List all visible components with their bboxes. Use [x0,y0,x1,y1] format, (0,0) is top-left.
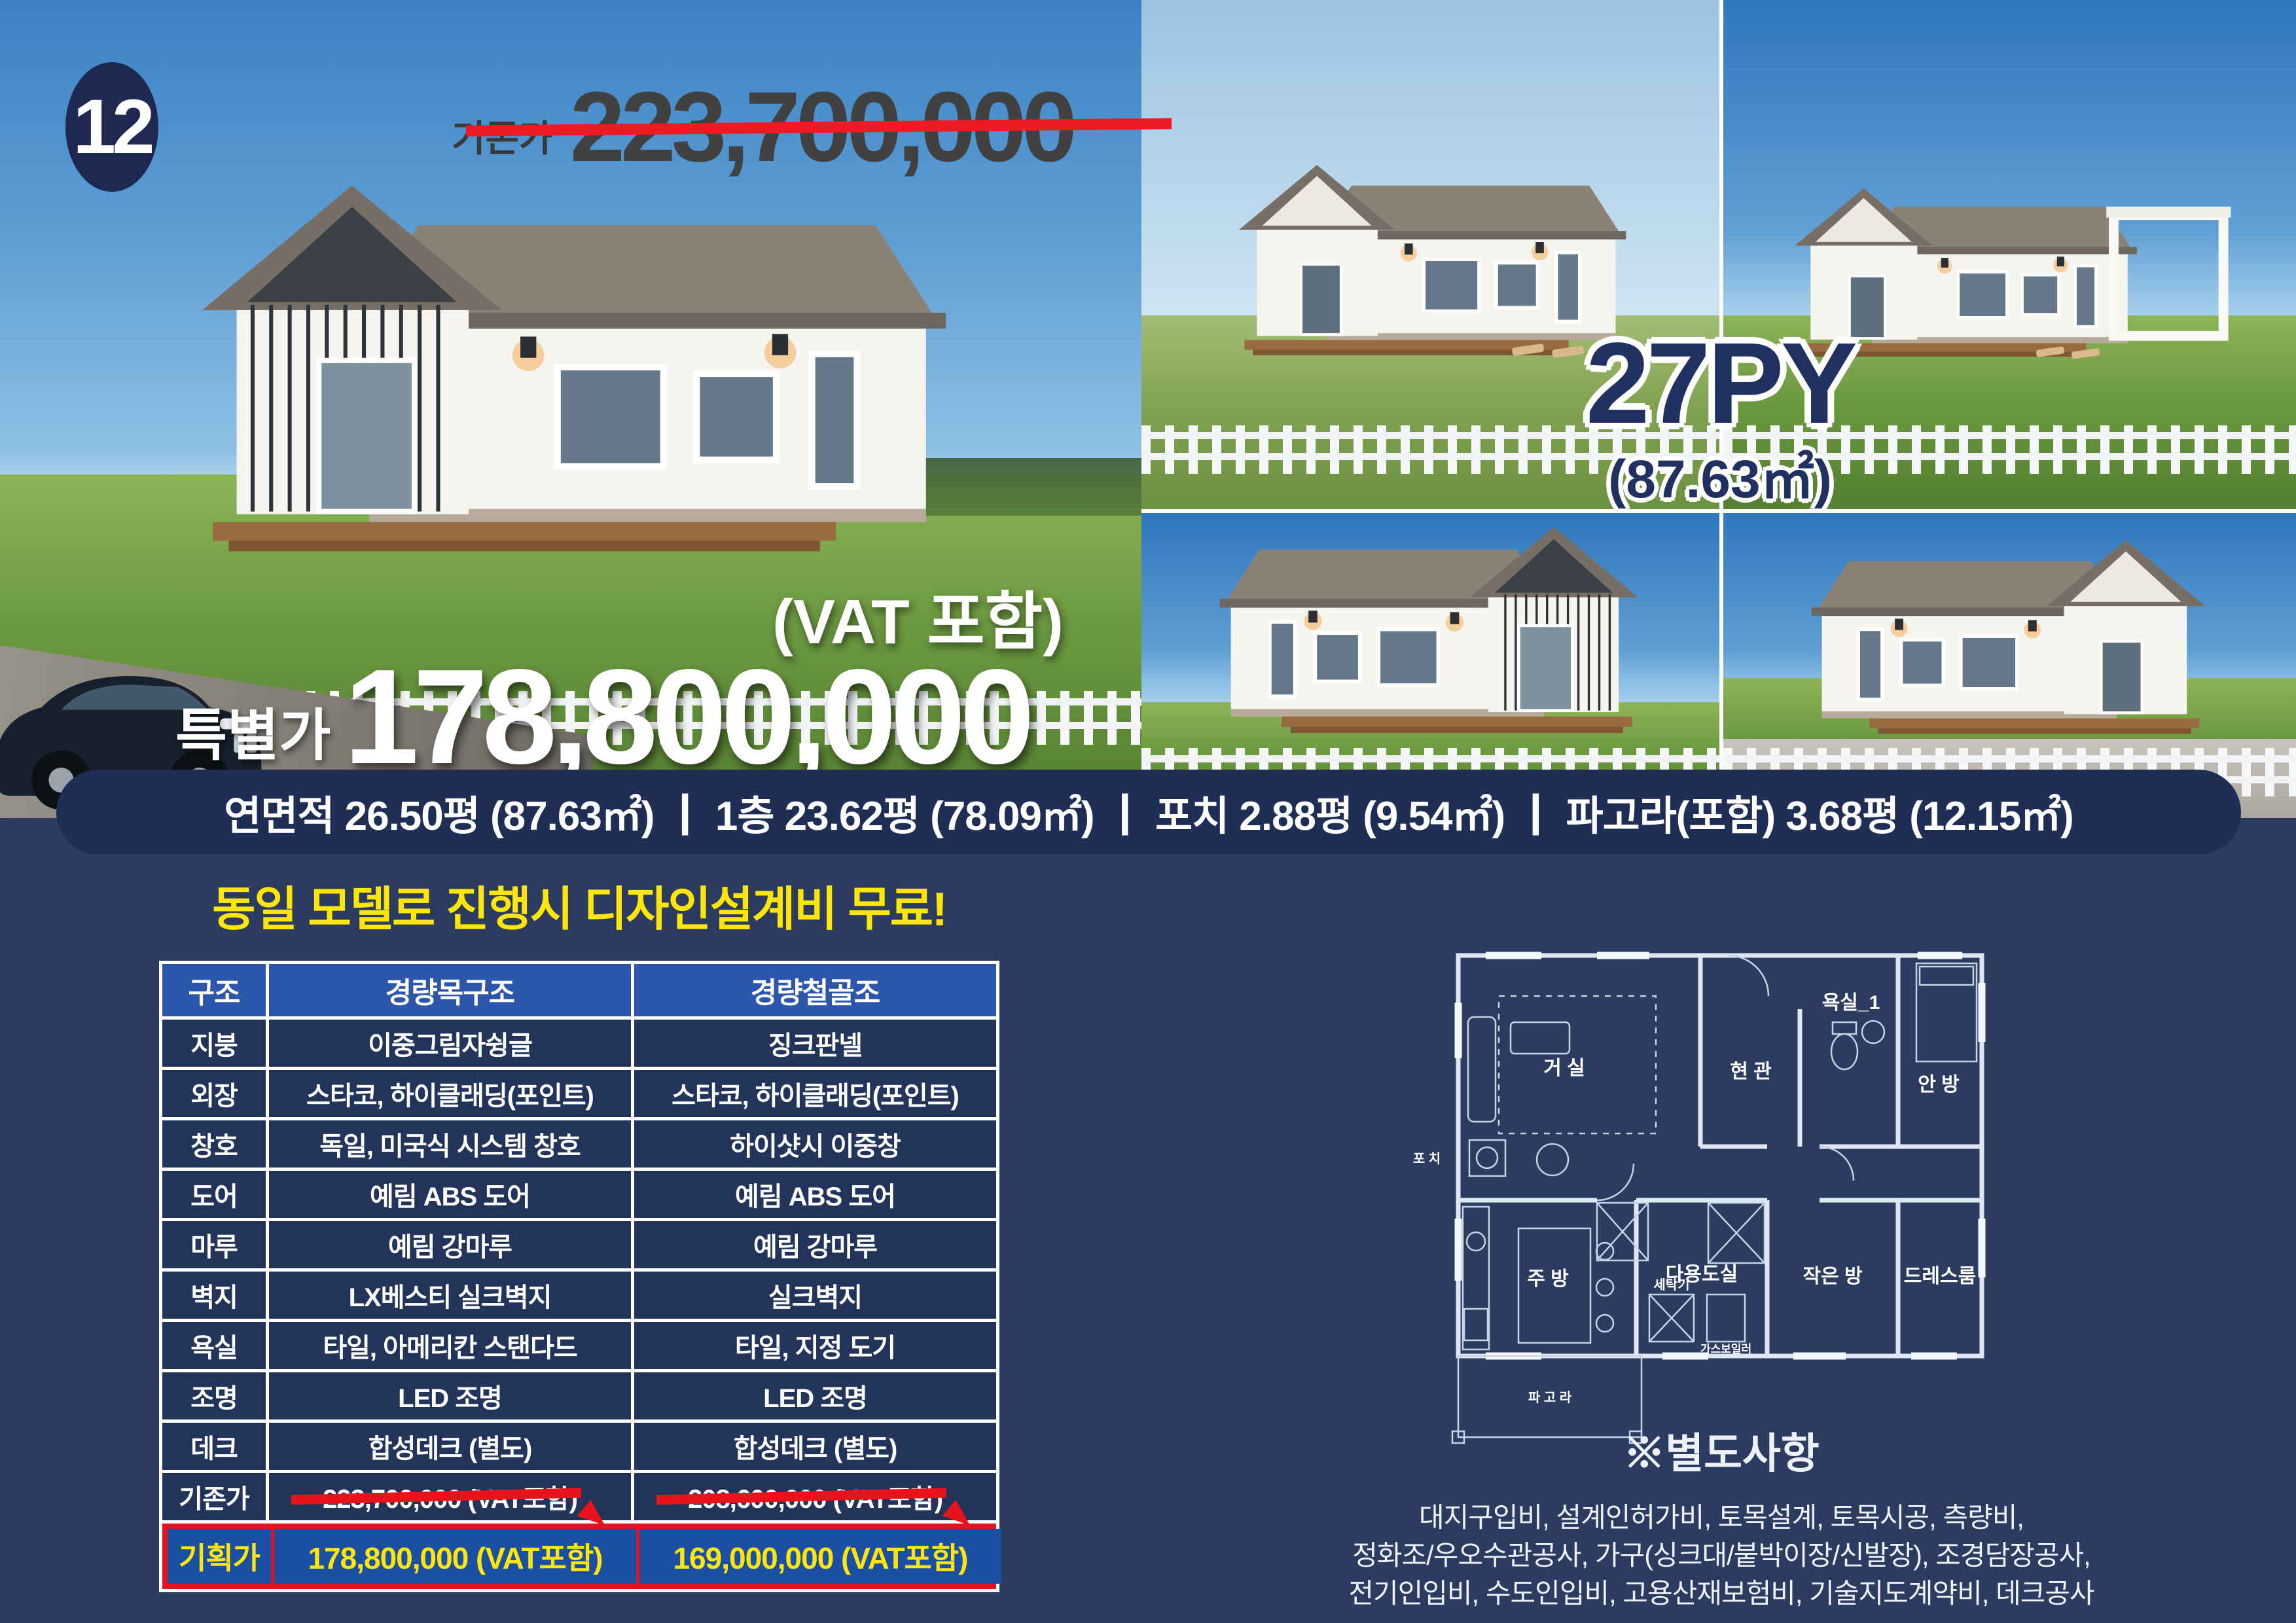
spec-cell-r8c1-text: 합성데크 (별도) [368,1427,532,1465]
spec-cell-r5c0: 벽지 [162,1272,266,1319]
spec-cell-r6c1-text: 타일, 아메리칸 스탠다드 [323,1327,577,1364]
area-banner: 연면적 26.50평 (87.63㎡) ┃ 1층 23.62평 (78.09㎡)… [56,770,2241,855]
spec-cell-r3c2-text: 예림 ABS 도어 [735,1175,895,1213]
room-label-bath: 욕실_1 [1822,992,1880,1014]
house-render [1217,152,1644,366]
spec-old-price-c0: 기존가 [162,1473,266,1520]
area-banner-text: 연면적 26.50평 (87.63㎡) ┃ 1층 23.62평 (78.09㎡)… [224,783,2073,842]
spec-plan-price-c2: 169,000,000 (VAT포함) [639,1529,1001,1584]
number-badge: 12 [65,62,158,192]
size-subtitle: (87.63㎡) [1608,453,1832,507]
special-price-label: 특별가 [175,689,331,771]
room-label-small-room: 작은 방 [1803,1266,1863,1287]
spec-cell-r3c1-text: 예림 ABS 도어 [370,1175,530,1213]
spec-cell-r8c0: 데크 [162,1423,266,1470]
spec-cell-r0c0-text: 지붕 [190,1024,238,1062]
badge-number: 12 [73,82,151,171]
spec-cell-r2c0-text: 창호 [190,1125,238,1163]
special-price-value: 178,800,000 [344,649,1029,784]
spec-cell-r4c2: 예림 강마루 [634,1221,996,1268]
floor-plan: 거 실 현 관 욕실_1 안 방 포 치 주 방 다용도실 세탁기 가스보일러 … [1401,944,2029,1467]
notes-section: ※별도사항 대지구입비, 설계인허가비, 토목설계, 토목시공, 측량비, 정화… [1230,1420,2212,1613]
spec-plan-price-c1: 178,800,000 (VAT포함) [274,1529,636,1584]
room-label-boiler: 가스보일러 [1700,1343,1751,1355]
spec-cell-r0c1-text: 이중그림자슁글 [368,1024,532,1062]
spec-plan-price-c0: 기획가 [168,1529,271,1584]
spec-cell-r0c2-text: 징크판넬 [768,1024,862,1062]
spec-cell-r3c0-text: 도어 [190,1175,238,1213]
spec-cell-r0c1: 이중그림자슁글 [269,1020,631,1067]
spec-cell-r2c1-text: 독일, 미국식 시스템 창호 [319,1125,580,1163]
spec-table: 구조경량목구조경량철골조지붕이중그림자슁글징크판넬외장스타코, 하이클래딩(포인… [159,961,999,1592]
room-label-master: 안 방 [1918,1074,1960,1096]
spec-cell-r2c1: 독일, 미국식 시스템 창호 [269,1120,631,1168]
spec-cell-r5c1-text: LX베스티 실크벽지 [349,1276,552,1314]
spec-cell-r5c0-text: 벽지 [190,1276,238,1314]
spec-cell-r6c1: 타일, 아메리칸 스탠다드 [269,1322,631,1369]
spec-cell-r4c1: 예림 강마루 [269,1221,631,1268]
room-label-kitchen: 주 방 [1527,1268,1569,1290]
spec-cell-r3c2: 예림 ABS 도어 [634,1171,996,1218]
spec-cell-r1c2-text: 스타코, 하이클래딩(포인트) [672,1075,959,1113]
spec-header-1: 경량목구조 [269,964,631,1016]
house-render [160,162,982,573]
room-label-living: 거 실 [1543,1058,1585,1079]
house-render [1199,514,1661,745]
spec-cell-r7c1-text: LED 조명 [398,1377,502,1415]
notes-heading: ※별도사항 [1230,1420,2212,1480]
spec-old-price-c2: 208,600,000 (VAT포함) [634,1473,996,1520]
room-label-pergola: 파 고 라 [1528,1390,1572,1405]
spec-cell-r4c0-text: 마루 [190,1226,238,1264]
spec-cell-r7c0: 조명 [162,1372,266,1419]
spec-header-2-text: 경량철골조 [751,969,880,1011]
note-line: 정화조/우오수관공사, 가구(싱크대/붙박이장/신발장), 조경담장공사, [1230,1537,2212,1575]
spec-cell-r6c2-text: 타일, 지정 도기 [735,1327,895,1364]
floor-plan-drawing: 거 실 현 관 욕실_1 안 방 포 치 주 방 다용도실 세탁기 가스보일러 … [1401,944,2029,1467]
spec-cell-r7c2-text: LED 조명 [763,1377,867,1415]
room-label-washer: 세탁기 [1653,1277,1689,1293]
spec-cell-r5c2-text: 실크벽지 [768,1276,862,1314]
room-label-entrance: 현 관 [1730,1061,1772,1082]
spec-plan-price-c2-text: 169,000,000 (VAT포함) [673,1535,967,1578]
spec-cell-r4c0: 마루 [162,1221,266,1268]
spec-header-2: 경량철골조 [634,964,996,1016]
spec-header-0: 구조 [162,964,266,1016]
spec-cell-r8c1: 합성데크 (별도) [269,1423,631,1470]
spec-cell-r0c2: 징크판넬 [634,1020,996,1067]
spec-cell-r5c1: LX베스티 실크벽지 [269,1272,631,1319]
spec-cell-r6c0: 욕실 [162,1322,266,1369]
spec-old-price-c0-text: 기존가 [179,1478,249,1516]
spec-cell-r3c1: 예림 ABS 도어 [269,1171,631,1218]
size-title: 27PY [1586,326,1855,441]
room-label-porch: 포 치 [1413,1151,1441,1166]
spec-cell-r5c2: 실크벽지 [634,1272,996,1319]
spec-cell-r3c0: 도어 [162,1171,266,1218]
spec-table-grid: 구조경량목구조경량철골조지붕이중그림자슁글징크판넬외장스타코, 하이클래딩(포인… [162,964,996,1520]
special-price-group: 특별가 178,800,000 [175,649,1029,784]
spec-cell-r7c1: LED 조명 [269,1372,631,1419]
spec-cell-r2c2: 하이샷시 이중창 [634,1120,996,1168]
spec-old-price-c1: 223,700,000 (VAT포함) [269,1473,631,1520]
spec-cell-r2c2-text: 하이샷시 이중창 [730,1125,901,1163]
note-line: 전기인입비, 수도인입비, 고용산재보험비, 기술지도계약비, 데크공사 [1230,1575,2212,1613]
spec-plan-price-c0-text: 기획가 [179,1535,260,1578]
spec-plan-price-c1-text: 178,800,000 (VAT포함) [308,1535,602,1578]
spec-cell-r1c1-text: 스타코, 하이클래딩(포인트) [306,1075,594,1113]
promo-headline: 동일 모델로 진행시 디자인설계비 무료! [159,870,999,939]
plan-price-row: 기획가178,800,000 (VAT포함)169,000,000 (VAT포함… [162,1524,996,1589]
room-label-dress-room: 드레스룸 [1904,1266,1976,1287]
spec-cell-r1c2: 스타코, 하이클래딩(포인트) [634,1070,996,1117]
spec-cell-r8c0-text: 데크 [190,1427,238,1465]
spec-cell-r1c0: 외장 [162,1070,266,1117]
spec-cell-r1c1: 스타코, 하이클래딩(포인트) [269,1070,631,1117]
spec-cell-r8c2-text: 합성데크 (별도) [734,1427,897,1465]
spec-cell-r7c2: LED 조명 [634,1372,996,1419]
spec-cell-r7c0-text: 조명 [190,1377,238,1415]
spec-cell-r1c0-text: 외장 [190,1075,238,1113]
spec-header-0-text: 구조 [188,969,240,1011]
spec-cell-r4c2-text: 예림 강마루 [753,1226,877,1264]
spec-cell-r6c0-text: 욕실 [190,1327,238,1364]
spec-cell-r2c0: 창호 [162,1120,266,1168]
spec-cell-r0c0: 지붕 [162,1020,266,1067]
spec-cell-r4c1-text: 예림 강마루 [388,1226,512,1264]
spec-cell-r6c2: 타일, 지정 도기 [634,1322,996,1369]
spec-cell-r8c2: 합성데크 (별도) [634,1423,996,1470]
house-render [1792,527,2227,745]
spec-header-1-text: 경량목구조 [386,969,514,1011]
note-line: 대지구입비, 설계인허가비, 토목설계, 토목시공, 측량비, [1230,1499,2212,1537]
poster: 12 기존가 223,700,000 (VAT 포함) 특별가 178,800,… [0,0,2296,1623]
